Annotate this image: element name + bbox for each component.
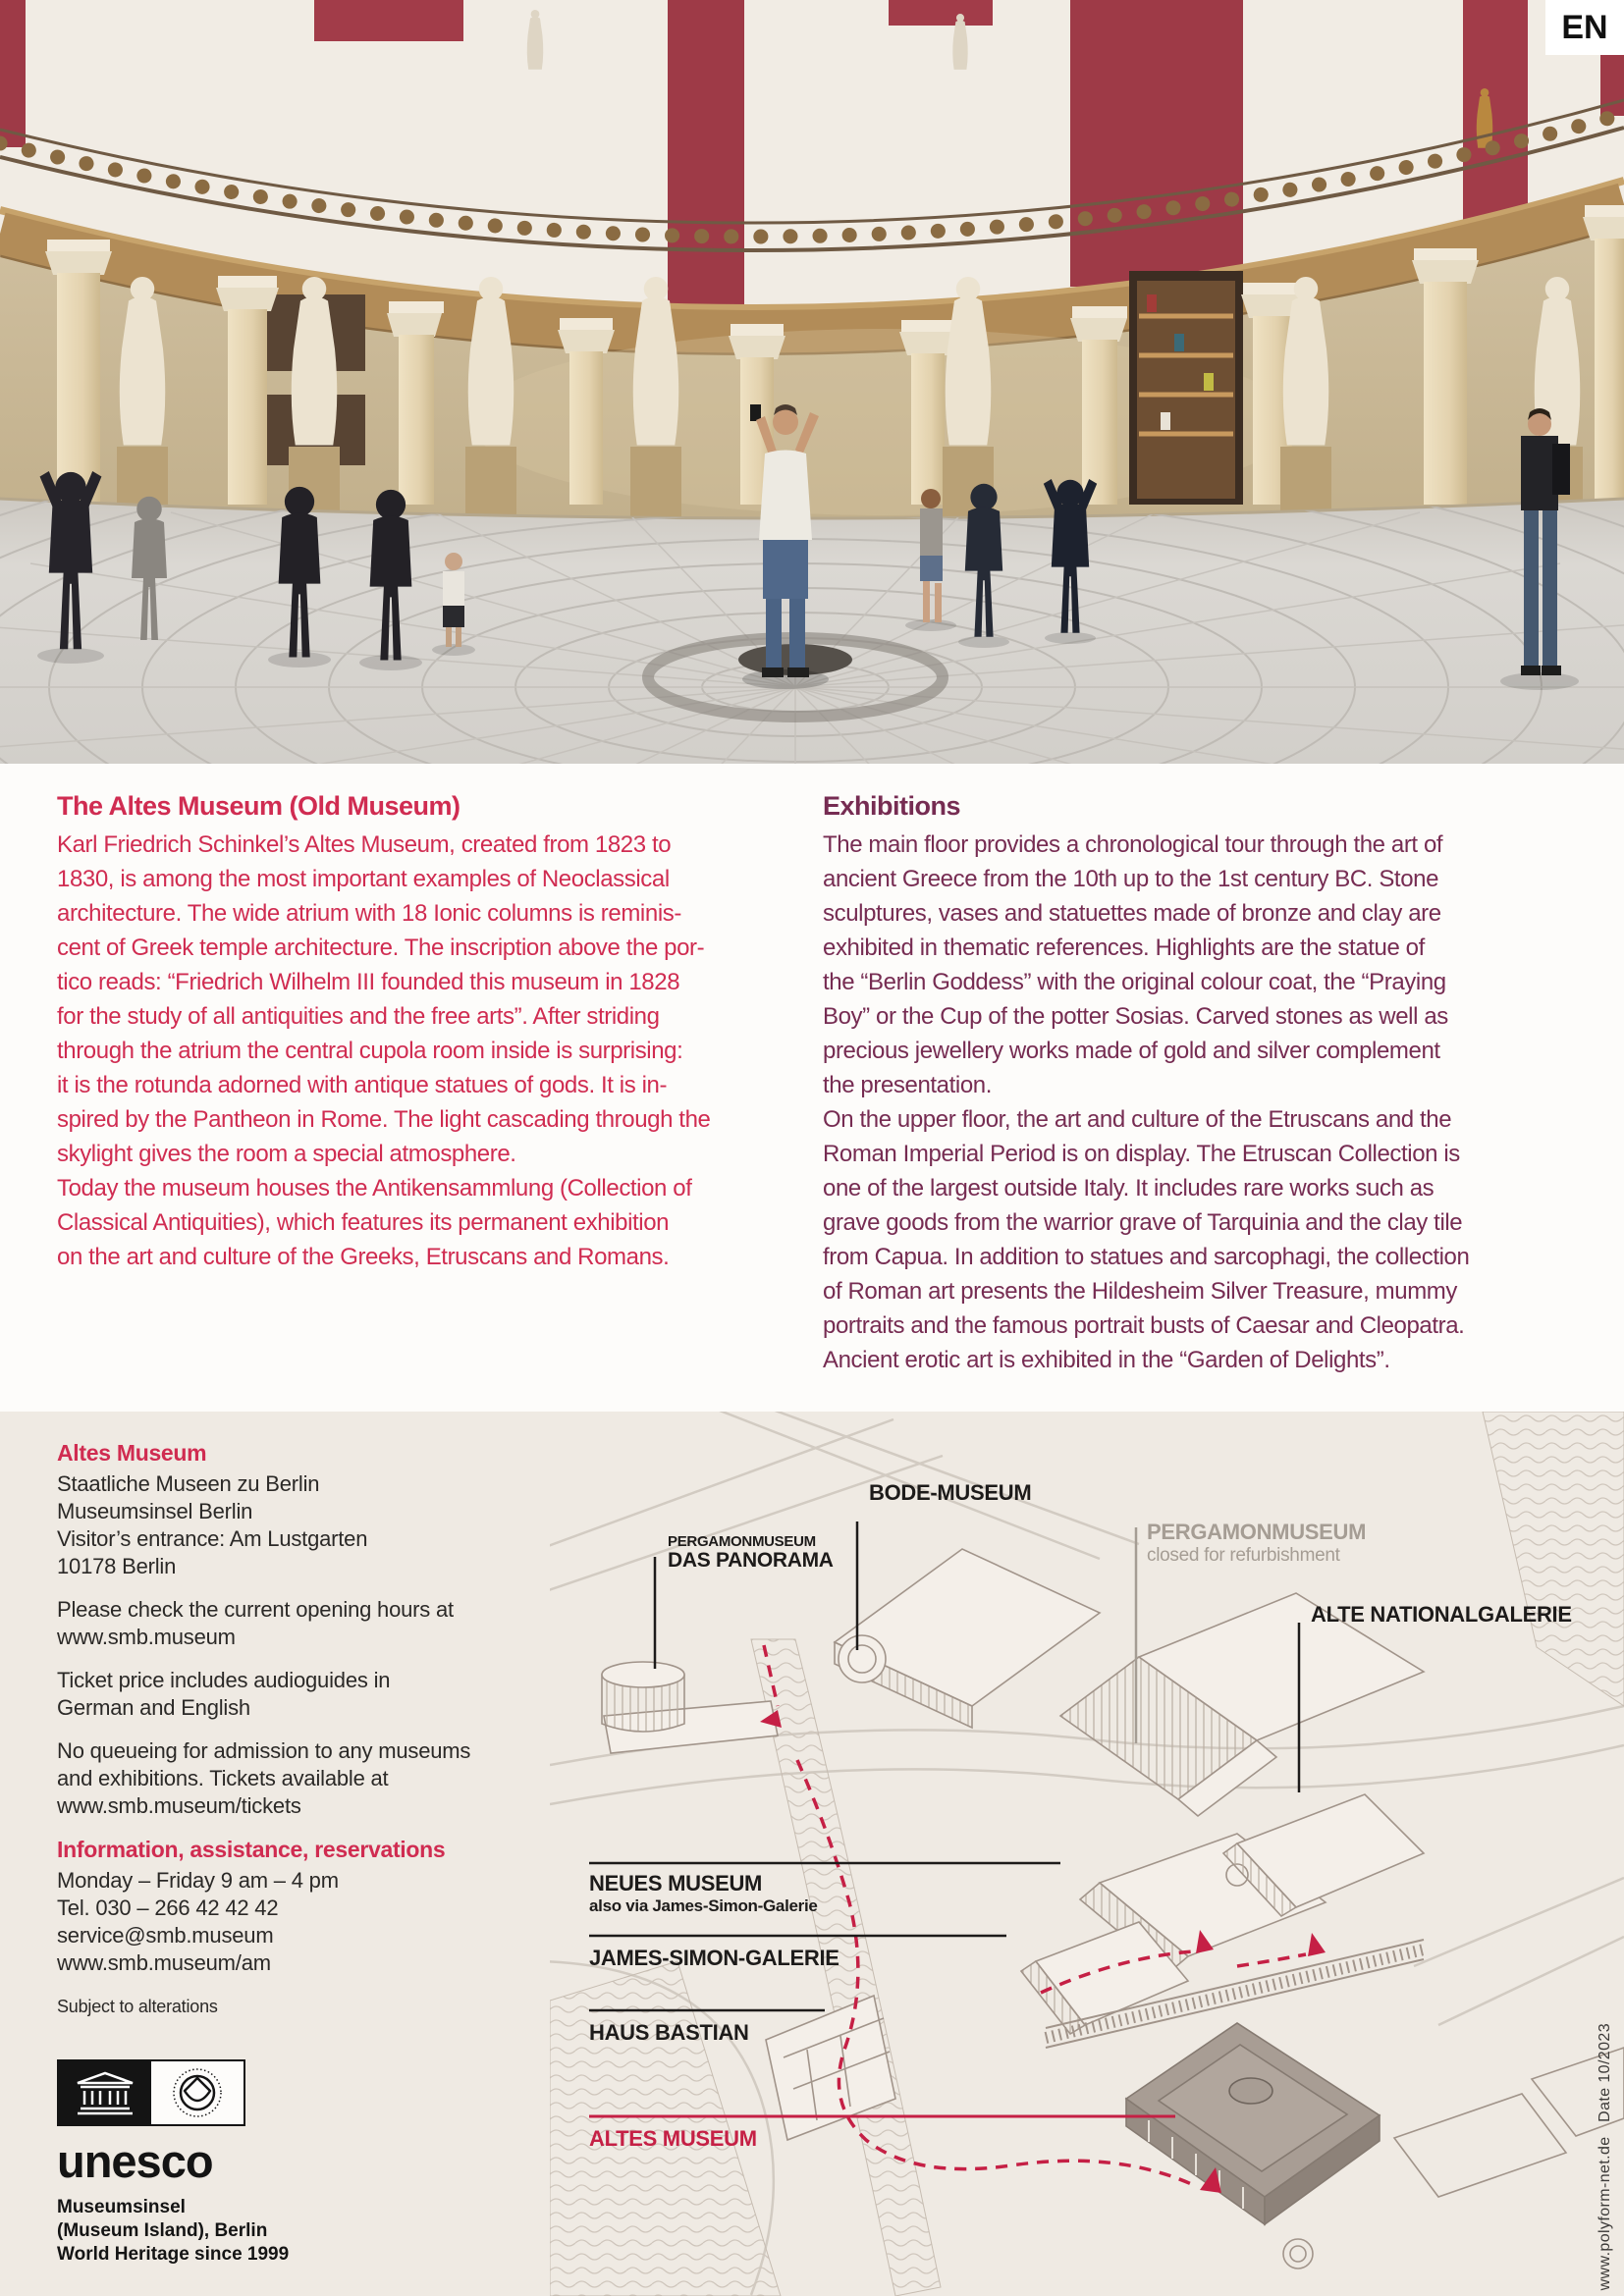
info-contact-heading: Information, assistance, reservations (57, 1836, 518, 1863)
intro-heading: The Altes Museum (Old Museum) (57, 791, 768, 822)
map-label-altes-museum: ALTES MUSEUM (589, 2126, 757, 2152)
intro-column: The Altes Museum (Old Museum) Karl Fried… (57, 791, 768, 1274)
map-label-pergamon: PERGAMONMUSEUM (1147, 1520, 1366, 1545)
brochure-page: EN The Altes Museum (Old Museum) Karl Fr… (0, 0, 1624, 2296)
info-tickets: No queueing for admission to any museums… (57, 1737, 518, 1820)
doorway (1129, 271, 1243, 505)
museum-island-map: BODE-MUSEUM PERGAMONMUSEUM DAS PANORAMA … (550, 1412, 1624, 2296)
world-heritage-emblem-icon (151, 2061, 244, 2124)
exhibitions-body: The main floor provides a chronological … (823, 828, 1569, 1377)
unesco-block: unesco Museumsinsel (Museum Island), Ber… (57, 2059, 352, 2267)
exhibitions-column: Exhibitions The main floor provides a ch… (823, 791, 1569, 1377)
map-label-alte-nationalgalerie: ALTE NATIONALGALERIE (1311, 1602, 1572, 1628)
info-note: Subject to alterations (57, 1993, 518, 2020)
intro-body: Karl Friedrich Schinkel’s Altes Museum, … (57, 828, 768, 1274)
info-audioguides: Ticket price includes audioguides in Ger… (57, 1667, 518, 1722)
unesco-temple-icon (59, 2061, 151, 2124)
map-label-neues-museum: NEUES MUSEUM (589, 1871, 762, 1896)
unesco-wordmark: unesco (57, 2134, 352, 2188)
visitor-info: Altes Museum Staatliche Museen zu Berlin… (57, 1439, 518, 2036)
map-label-bode-museum: BODE-MUSEUM (869, 1480, 1031, 1506)
map-label-james-simon-galerie: JAMES-SIMON-GALERIE (589, 1946, 839, 1971)
unesco-caption: Museumsinsel (Museum Island), Berlin Wor… (57, 2196, 352, 2267)
exhibitions-heading: Exhibitions (823, 791, 1569, 822)
language-badge: EN (1545, 0, 1624, 55)
map-label-panorama: DAS PANORAMA (668, 1549, 834, 1573)
rotunda-photo (0, 0, 1624, 764)
map-credit: www.polyform-net.de Date 10/2023 (1597, 2023, 1614, 2290)
info-museum-heading: Altes Museum (57, 1439, 518, 1467)
map-label-panorama-top: PERGAMONMUSEUM (668, 1533, 816, 1550)
info-contact: Monday – Friday 9 am – 4 pm Tel. 030 – 2… (57, 1867, 518, 1977)
info-address: Staatliche Museen zu Berlin Museumsinsel… (57, 1470, 518, 1580)
unesco-logo (57, 2059, 245, 2126)
map-label-haus-bastian: HAUS BASTIAN (589, 2020, 749, 2046)
map-label-pergamon-sub: closed for refurbishment (1147, 1545, 1340, 1567)
footer-band: Altes Museum Staatliche Museen zu Berlin… (0, 1412, 1624, 2296)
map-label-neues-sub: also via James-Simon-Galerie (589, 1896, 818, 1916)
info-hours: Please check the current opening hours a… (57, 1596, 518, 1651)
